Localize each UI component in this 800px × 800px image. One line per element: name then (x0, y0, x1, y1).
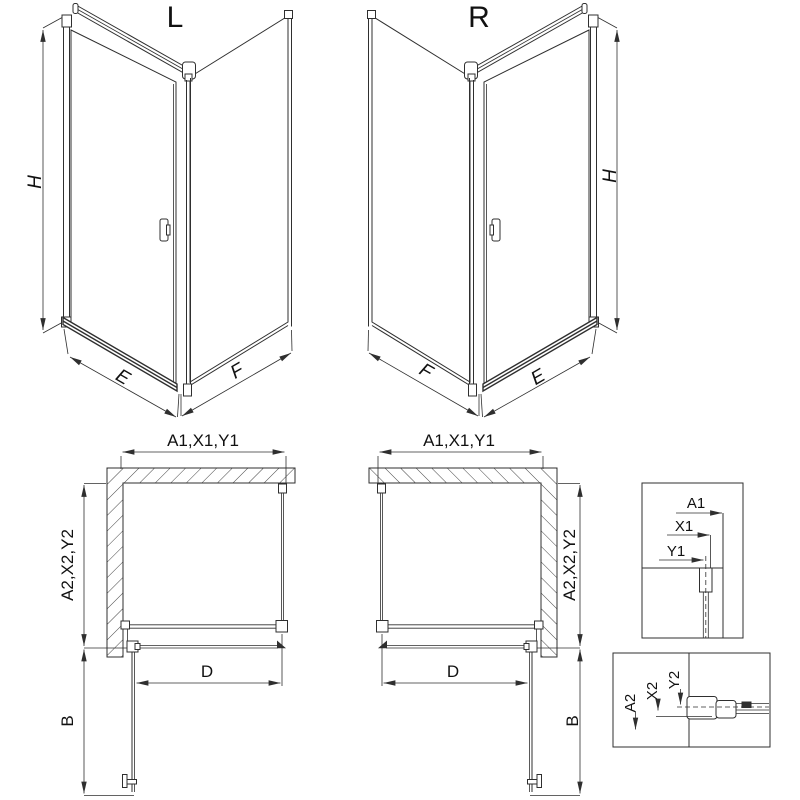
door-closed-line (127, 641, 286, 653)
iso-view-right: R H E F (368, 1, 622, 417)
dim-label-d-right: D (447, 662, 459, 681)
dim-label-e-left: E (112, 365, 134, 390)
corner-post (184, 78, 192, 396)
dim-label-f-right: F (415, 359, 437, 384)
dim-label-a2-left: A2,X2,Y2 (58, 529, 77, 601)
dim-label-e-right: E (528, 365, 550, 390)
door-handle (160, 219, 170, 241)
dim-label-b-left: B (58, 715, 77, 726)
detail-label-y2: Y2 (666, 671, 683, 689)
dim-label-a1-right: A1,X1,Y1 (423, 431, 495, 450)
dim-label-h-right: H (600, 169, 621, 183)
detail-profile-section (700, 556, 713, 638)
label-version-right: R (468, 1, 490, 34)
diagram-canvas: L H E F R H E F (0, 0, 800, 800)
iso-view-left: L H E F (25, 1, 293, 417)
dim-label-d-left: D (201, 662, 213, 681)
wall-section (107, 468, 295, 657)
iso-enclosure-shape (43, 4, 293, 418)
fixed-panel-glass (276, 484, 288, 632)
diagram-page: L H E F R H E F (0, 0, 800, 800)
detail-label-a2: A2 (622, 694, 639, 712)
dim-label-a2-right: A2,X2,Y2 (560, 529, 579, 601)
detail-label-a1: A1 (687, 495, 705, 512)
dim-label-b-right: B (563, 715, 582, 726)
wall-profile (62, 15, 72, 327)
label-version-left: L (167, 1, 184, 34)
support-bar (121, 621, 276, 641)
dimension-h (43, 17, 63, 333)
plan-view-left: A1,X1,Y1 A2,X2,Y2 D B (58, 431, 295, 796)
dim-label-a1-left: A1,X1,Y1 (167, 431, 239, 450)
plan-shape (84, 452, 295, 796)
detail-label-x1: X1 (675, 518, 693, 535)
detail-label-x2: X2 (644, 682, 661, 700)
dim-label-h-left: H (25, 175, 46, 189)
plan-view-right: A1,X1,Y1 A2,X2,Y2 D B (369, 431, 582, 796)
detail-box-bottom: A2 X2 Y2 (613, 653, 770, 747)
dimension-b (84, 650, 134, 796)
door-open-line (123, 652, 137, 792)
detail-label-y1: Y1 (667, 543, 685, 560)
detail-profile-section (677, 697, 769, 720)
side-panel (190, 11, 293, 386)
detail-box-top: A1 X1 Y1 (642, 483, 743, 638)
